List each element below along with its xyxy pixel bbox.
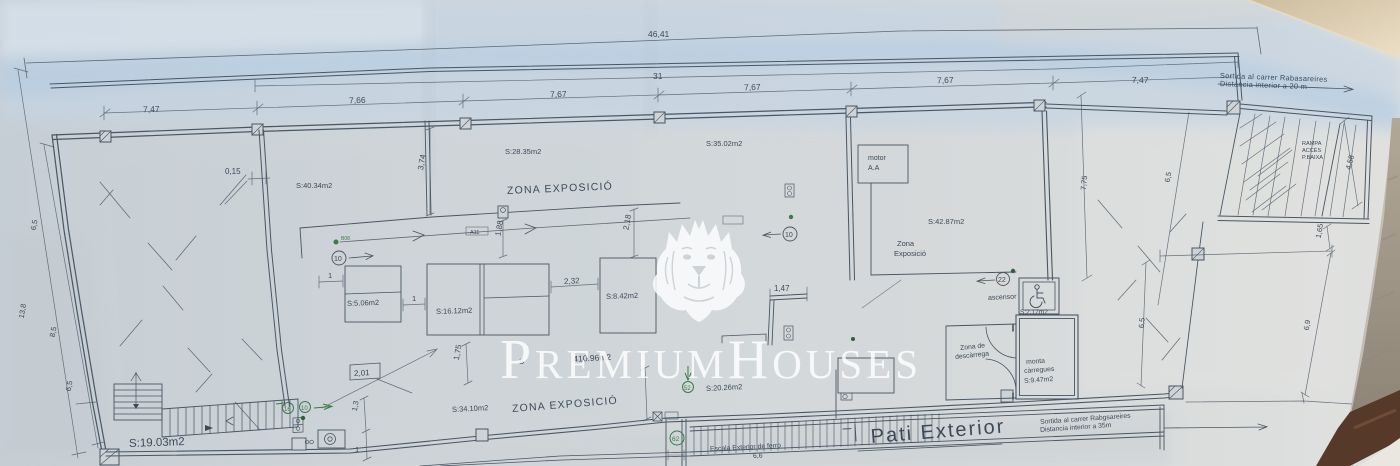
svg-text:S:16.12m2: S:16.12m2 [436,306,473,316]
svg-text:62: 62 [672,436,680,443]
svg-text:2,01: 2,01 [354,368,371,378]
svg-text:6,9: 6,9 [1302,319,1313,331]
svg-text:A11: A11 [470,230,479,236]
svg-text:P.BAIXA: P.BAIXA [1302,155,1323,161]
svg-text:8,5: 8,5 [48,326,59,338]
svg-text:S:28.35m2: S:28.35m2 [505,147,541,156]
svg-text:16: 16 [284,407,291,413]
svg-text:0,15: 0,15 [225,167,241,176]
svg-text:7,47: 7,47 [143,104,160,115]
svg-text:1: 1 [412,294,416,303]
svg-text:1,47: 1,47 [774,284,790,293]
svg-text:46,41: 46,41 [648,29,670,39]
svg-text:S:5.06m2: S:5.06m2 [347,298,379,308]
svg-text:S:42.87m2: S:42.87m2 [928,217,964,226]
svg-text:monta: monta [1026,358,1046,366]
svg-text:7,66: 7,66 [349,95,366,106]
svg-text:31: 31 [653,71,663,81]
svg-text:7,67: 7,67 [550,89,567,100]
svg-text:6,6: 6,6 [753,452,763,459]
svg-text:6,5: 6,5 [64,380,75,392]
svg-text:6,5: 6,5 [29,219,40,231]
svg-text:6,5: 6,5 [1163,171,1174,183]
svg-text:10: 10 [301,406,308,412]
svg-text:S:19.03m2: S:19.03m2 [129,436,185,450]
svg-text:S:34.10m2: S:34.10m2 [452,403,489,414]
svg-text:A.A: A.A [868,165,880,172]
svg-text:10: 10 [334,256,342,263]
svg-text:ACCÉS: ACCÉS [1302,147,1322,154]
svg-text:S:40.34m2: S:40.34m2 [296,181,332,190]
svg-text:1: 1 [328,271,332,280]
svg-text:1: 1 [355,445,359,454]
svg-text:Exposició: Exposició [894,249,926,258]
svg-text:2,32: 2,32 [564,276,581,286]
svg-text:7,47: 7,47 [1132,75,1149,85]
svg-text:6,5: 6,5 [1137,317,1147,328]
svg-text:S:35.02m2: S:35.02m2 [706,139,742,148]
svg-text:10: 10 [785,232,793,239]
svg-text:7,67: 7,67 [937,75,954,86]
svg-text:22: 22 [998,277,1006,284]
svg-text:RAMPA: RAMPA [1302,141,1322,147]
svg-text:S:8.42m2: S:8.42m2 [606,291,638,301]
svg-text:Zona: Zona [897,239,915,248]
svg-text:B08: B08 [341,236,350,242]
svg-text:S:2.17m2: S:2.17m2 [1020,309,1048,316]
svg-text:7,75: 7,75 [1079,175,1089,190]
svg-text:7,67: 7,67 [744,82,761,93]
svg-text:motor: motor [868,155,887,162]
svg-text:1,3: 1,3 [350,400,361,412]
